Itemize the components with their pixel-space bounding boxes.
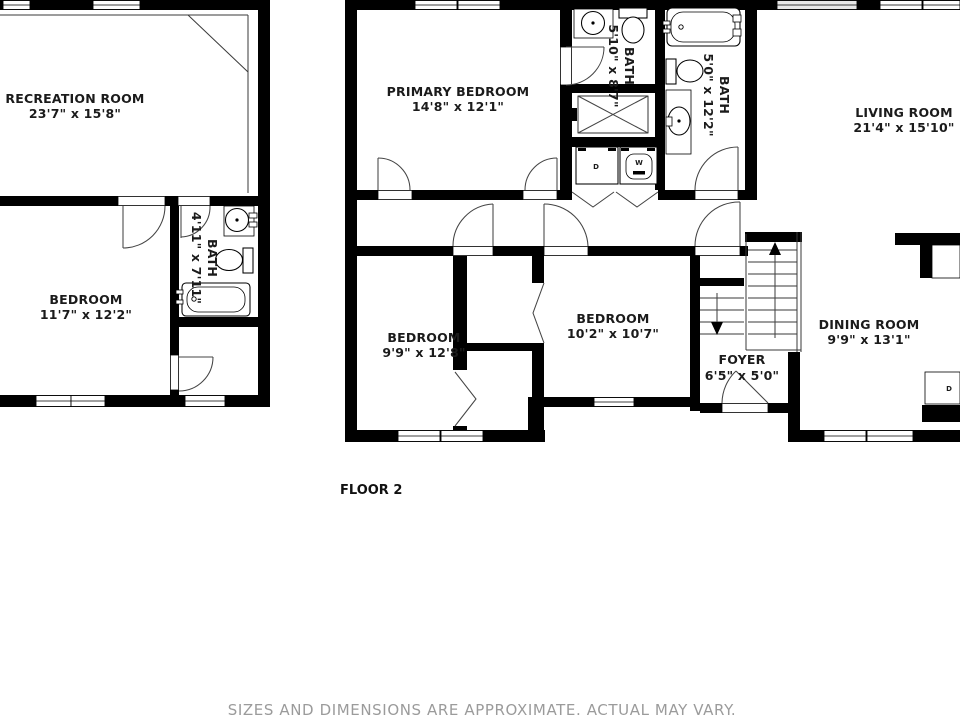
sink-drain	[591, 21, 594, 24]
toilet-tank	[666, 59, 676, 84]
washer-slot	[633, 171, 645, 175]
faucet	[249, 213, 257, 218]
main-plan: D W	[345, 0, 960, 442]
tub-handle	[733, 29, 741, 36]
dryer-label: D	[593, 163, 599, 171]
room-label-bath-right-group: BATH 5'0" x 12'2"	[701, 53, 732, 136]
shower-valve	[572, 108, 577, 121]
room-label-bath-left: BATH	[205, 239, 220, 277]
tub-faucet	[663, 29, 670, 33]
room-dims-foyer: 6'5" x 5'0"	[705, 368, 779, 383]
room-label-foyer: FOYER	[719, 352, 766, 367]
faucet	[666, 117, 672, 126]
bifold-closet-doors	[455, 192, 658, 426]
stair-treads-up	[748, 250, 797, 334]
floorplan-image: RECREATION ROOM 23'7" x 15'8" BEDROOM 11…	[0, 0, 960, 720]
dishwasher	[925, 372, 960, 404]
tub-faucet	[663, 21, 670, 25]
room-dims-living: 21'4" x 15'10"	[853, 120, 954, 135]
room-label-living: LIVING ROOM	[855, 105, 953, 120]
room-dims-bath-upper: 5'10" x 8'7"	[606, 24, 621, 107]
tub-faucet	[176, 290, 183, 294]
laundry: D W	[576, 147, 657, 184]
dryer-control	[578, 148, 586, 151]
tub-handle	[733, 15, 741, 22]
walls	[345, 0, 960, 442]
room-dims-bath-right: 5'0" x 12'2"	[701, 53, 716, 136]
room-label-bedroom-left: BEDROOM	[49, 292, 122, 307]
sink-drain	[235, 218, 238, 221]
room-dims-bedroom-left: 11'7" x 12'2"	[40, 307, 132, 322]
stair-treads-down	[700, 298, 744, 334]
room-label-primary: PRIMARY BEDROOM	[387, 84, 530, 99]
dryer-control	[608, 148, 616, 151]
floorplan-svg: RECREATION ROOM 23'7" x 15'8" BEDROOM 11…	[0, 0, 960, 720]
toilet-bowl	[677, 60, 703, 82]
room-dims-recreation: 23'7" x 15'8"	[29, 106, 121, 121]
floor-label: FLOOR 2	[340, 483, 402, 498]
washer-label: W	[635, 159, 643, 167]
left-plan: RECREATION ROOM 23'7" x 15'8" BEDROOM 11…	[0, 0, 270, 407]
disclaimer-text: SIZES AND DIMENSIONS ARE APPROXIMATE. AC…	[228, 701, 736, 719]
room-label-recreation: RECREATION ROOM	[5, 91, 144, 106]
sink-drain	[677, 119, 680, 122]
counter	[932, 245, 960, 278]
room-label-bath-right: BATH	[717, 76, 732, 114]
stairs-up-arrowhead	[769, 242, 781, 255]
room-label-bedroom-right: BEDROOM	[576, 311, 649, 326]
tub-faucet	[176, 300, 183, 304]
bathtub-inner	[671, 12, 735, 42]
stairs-down-arrowhead	[711, 322, 723, 335]
dishwasher-label: D	[946, 385, 952, 393]
room-dims-primary: 14'8" x 12'1"	[412, 99, 504, 114]
toilet-bowl	[622, 17, 644, 43]
washer-control	[621, 148, 629, 151]
room-dims-dining: 9'9" x 13'1"	[827, 332, 910, 347]
room-label-bedroom-mid: BEDROOM	[387, 330, 460, 345]
washer-control	[647, 148, 655, 151]
room-label-bath-upper: BATH	[622, 47, 637, 85]
faucet	[249, 222, 257, 227]
room-dims-bedroom-right: 10'2" x 10'7"	[567, 326, 659, 341]
room-dims-bath-left: 4'11" x 7'11"	[189, 212, 204, 304]
room-label-dining: DINING ROOM	[819, 317, 920, 332]
room-dims-bedroom-mid: 9'9" x 12'8"	[382, 345, 465, 360]
toilet-tank	[243, 248, 253, 273]
